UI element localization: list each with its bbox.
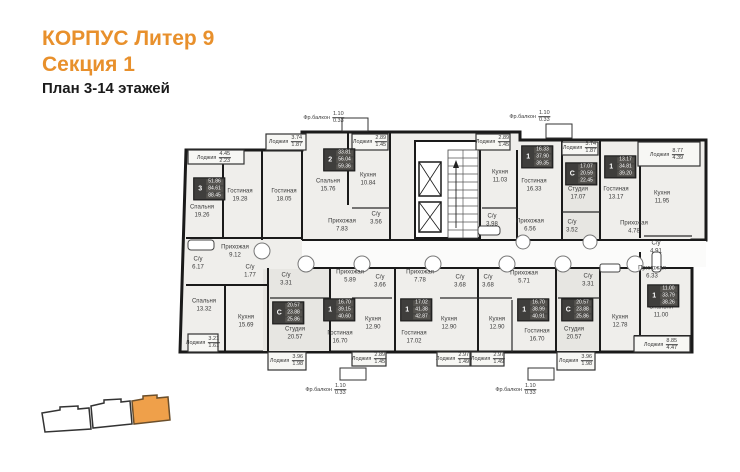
loggia-label: Лоджия2.971.49: [436, 352, 470, 366]
room-label: Спальня15.76: [316, 179, 340, 194]
room-label: Студия20.57: [285, 327, 305, 342]
room-label: С/у3.31: [582, 274, 594, 289]
loggia-label: Фр.балкон1.100.33: [303, 111, 344, 125]
room-label: Кухня12.78: [612, 315, 628, 330]
apartment-area-badge: 113.1734.8139.20: [604, 155, 636, 178]
room-label: Спальня19.26: [190, 205, 214, 220]
room-label: Спальня13.32: [192, 299, 216, 314]
room-label: Гостиная16.33: [521, 179, 546, 194]
room-label: Гостиная16.70: [327, 331, 352, 346]
room-label: Кухня12.90: [441, 317, 457, 332]
loggia-label: Лоджия2.891.45: [353, 135, 387, 149]
room-label: С/у3.31: [280, 273, 292, 288]
room-label: Кухня11.95: [654, 191, 670, 206]
room-label: Кухня12.90: [365, 317, 381, 332]
room-label: С/у3.68: [482, 275, 494, 290]
section-title: Секция 1: [42, 52, 214, 78]
apartment-area-badge: 351.8684.6188.45: [193, 177, 225, 200]
apartment-area-badge: 116.7039.1540.60: [323, 298, 355, 321]
loggia-label: Фр.балкон1.100.33: [305, 383, 346, 397]
room-label: Кухня11.03: [492, 170, 508, 185]
room-label: Прихожая9.12: [221, 245, 249, 260]
room-label: Кухня10.84: [360, 173, 376, 188]
apartment-area-badge: С20.5723.8825.86: [272, 301, 304, 324]
apartment-area-badge: 116.3337.9039.35: [521, 145, 553, 168]
room-label: С/у1.77: [244, 265, 256, 280]
room-label: С/у3.56: [370, 212, 382, 227]
loggia-label: Лоджия2.971.49: [471, 352, 505, 366]
loggia-label: Лоджия3.961.98: [559, 354, 593, 368]
loggia-label: Лоджия3.961.98: [270, 354, 304, 368]
apartment-area-badge: 116.7038.9940.91: [517, 298, 549, 321]
loggia-label: Лоджия8.774.39: [650, 148, 684, 162]
room-label: Прихожая6.33: [638, 266, 666, 281]
room-label: С/у3.66: [374, 275, 386, 290]
room-label: С/у4.91: [650, 241, 662, 256]
loggia-label: Фр.балкон1.100.33: [509, 110, 550, 124]
apartment-area-badge: С17.0720.5922.45: [565, 162, 597, 185]
apartment-area-badge: 111.0033.7938.26: [647, 284, 679, 307]
room-label: Гостиная16.70: [524, 329, 549, 344]
apartment-area-badge: 117.0241.3842.87: [400, 298, 432, 321]
loggia-label: Лоджия2.891.45: [476, 135, 510, 149]
loggia-label: Лоджия3.741.87: [269, 135, 303, 149]
room-label: Гостиная13.17: [603, 187, 628, 202]
loggia-label: Лоджия4.452.23: [197, 151, 231, 165]
room-label: Прихожая4.78: [620, 221, 648, 236]
loggia-label: Лоджия3.741.87: [563, 141, 597, 155]
room-label: Кухня15.69: [238, 315, 254, 330]
title-block: КОРПУС Литер 9 Секция 1 План 3-14 этажей: [42, 26, 214, 99]
building-title: КОРПУС Литер 9: [42, 26, 214, 52]
room-label: С/у6.17: [192, 257, 204, 272]
loggia-label: Лоджия2.891.45: [352, 352, 386, 366]
loggia-label: Лоджия3.211.61: [186, 336, 220, 350]
room-label: С/у3.68: [454, 275, 466, 290]
room-label: Гостиная19.28: [227, 189, 252, 204]
room-label: Студия20.57: [564, 327, 584, 342]
floor-plan-page: КОРПУС Литер 9 Секция 1 План 3-14 этажей: [0, 0, 740, 472]
room-label: Гостиная17.02: [401, 331, 426, 346]
room-label: С/у3.98: [486, 214, 498, 229]
loggia-label: Фр.балкон1.100.33: [495, 383, 536, 397]
apartment-area-badge: 233.8156.0459.36: [323, 148, 355, 171]
room-label: Студия17.07: [568, 187, 588, 202]
loggia-label: Лоджия8.854.47: [644, 338, 678, 352]
room-label: Гостиная18.05: [271, 189, 296, 204]
room-label: Прихожая7.78: [406, 270, 434, 285]
apartment-area-badge: С20.5723.8825.86: [561, 298, 593, 321]
room-label: Прихожая5.71: [510, 271, 538, 286]
room-label: Прихожая5.89: [336, 270, 364, 285]
room-label: Кухня12.90: [489, 317, 505, 332]
floors-subtitle: План 3-14 этажей: [42, 79, 214, 99]
room-label: Прихожая6.56: [516, 219, 544, 234]
room-label: С/у3.52: [566, 220, 578, 235]
room-label: Прихожая7.83: [328, 219, 356, 234]
